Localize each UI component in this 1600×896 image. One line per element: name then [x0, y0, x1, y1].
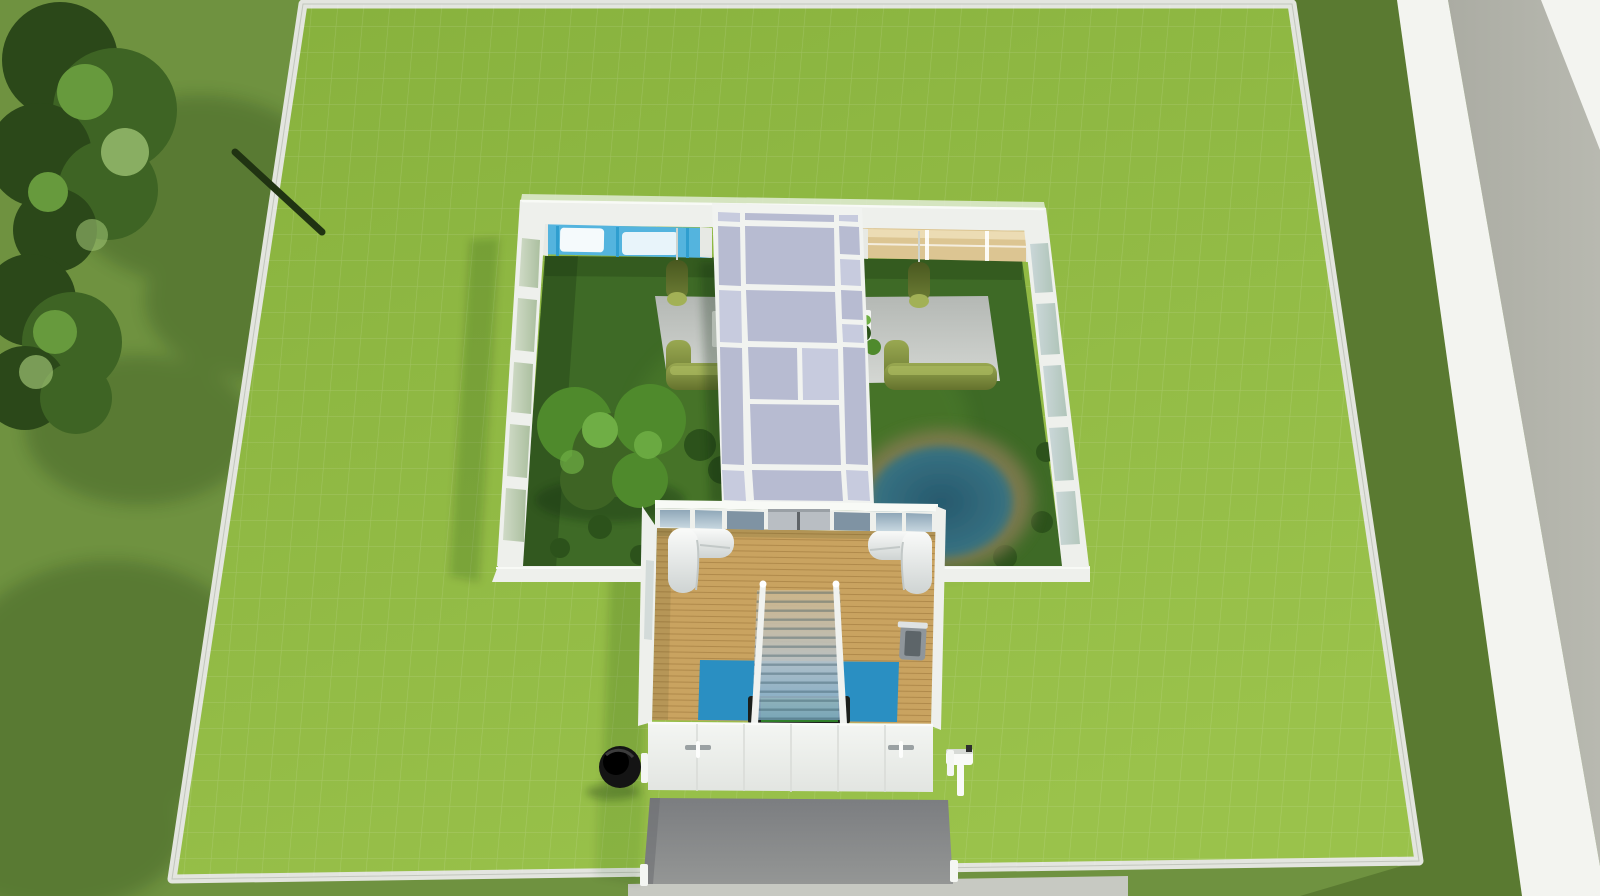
indoor-pool-room-view[interactable]: Indoor pool room (north wing): [533, 224, 710, 258]
west-wall-glass: [507, 424, 530, 478]
south-wall-left[interactable]: [492, 566, 658, 582]
corridor-pane: [720, 347, 744, 465]
corridor-pane: [722, 470, 746, 501]
west-wall-glass: [515, 298, 537, 352]
corridor-pane: [841, 290, 863, 320]
corridor-pane: [846, 470, 870, 501]
wall-mullion: [700, 227, 712, 258]
corridor-pane: [840, 259, 861, 286]
porch-post-right: [947, 750, 954, 776]
sliding-doors[interactable]: Sliding doors to courtyard: [768, 509, 830, 530]
gym-window: [695, 510, 722, 529]
south-wall-right[interactable]: [930, 566, 1090, 582]
gym-window: [876, 513, 902, 531]
wood-room-view[interactable]: Wood-floored room (north wing): [862, 228, 1040, 262]
stair-step-lines: [752, 590, 845, 720]
gym-window: [906, 513, 932, 532]
corridor-pane: [746, 290, 837, 343]
gym-north-wall[interactable]: Sliding doors to courtyard: [655, 500, 938, 532]
corridor-pane: [843, 347, 868, 465]
corridor-pane: [842, 324, 864, 343]
corridor-pane: [719, 290, 742, 343]
corridor-junction-glass: [727, 511, 764, 530]
west-wall-glass: [503, 488, 526, 542]
corridor-pane: [748, 347, 798, 400]
corridor-pane: [802, 348, 839, 400]
west-wall-glass: [519, 238, 540, 288]
corridor-pane: [718, 212, 740, 222]
fence-post-right: [950, 860, 958, 882]
patio-right[interactable]: Right courtyard patio Hedge sofa (right …: [848, 296, 1000, 390]
corridor-pane: [745, 226, 835, 286]
driveway[interactable]: Concrete driveway: [643, 798, 953, 884]
glass-corridor[interactable]: Glass-roofed corridor: [712, 203, 874, 505]
treadmill[interactable]: Treadmill: [896, 621, 928, 661]
corridor-pane: [839, 215, 858, 222]
gym-front-wall[interactable]: Front wall doors: [648, 722, 933, 792]
gym-building[interactable]: South building - wood floor lounge Blue …: [638, 500, 954, 792]
fence-post-left: [640, 864, 648, 886]
corridor-pane: [752, 470, 843, 501]
corridor-pane: [839, 226, 860, 255]
game-viewport[interactable]: Residential lot (fenced grass) Trees out…: [0, 0, 1600, 896]
corridor-pane: [718, 226, 741, 286]
corridor-pane: [750, 404, 841, 465]
porch-post-left: [641, 753, 648, 783]
staircase[interactable]: Staircase: [751, 581, 847, 725]
gym-window: [660, 510, 690, 528]
west-wall-glass: [511, 362, 533, 414]
corridor-junction-glass: [834, 512, 870, 531]
